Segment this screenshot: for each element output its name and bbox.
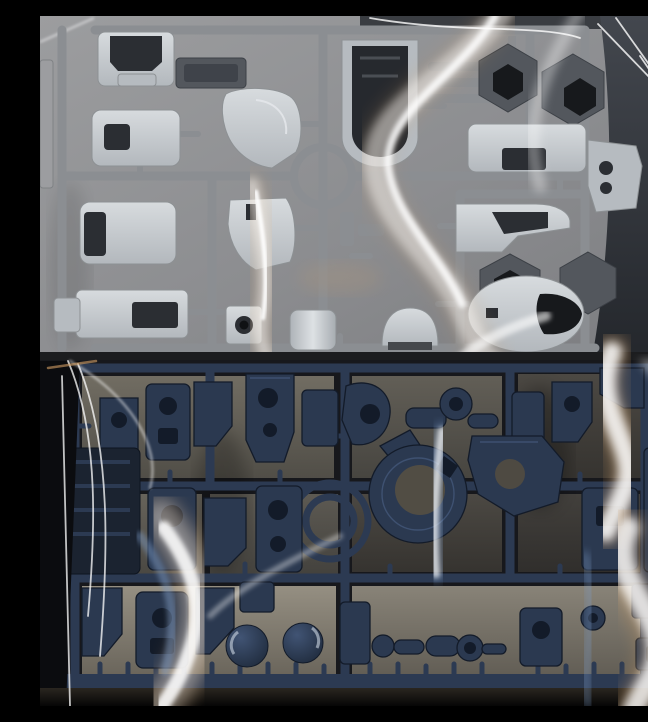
frame-part: [246, 374, 294, 462]
bracket-hole-2: [600, 182, 612, 194]
egg-body-slot: [486, 308, 498, 318]
photo-divider: [40, 352, 648, 360]
warm-glow: [298, 262, 382, 294]
vent-plate-recess: [184, 64, 238, 82]
frame-part: [146, 384, 190, 460]
chest-armor-lip: [118, 74, 156, 86]
table-bottom-strip: [40, 688, 648, 706]
bottom-photo-dark-runner: [40, 352, 648, 706]
small-runner-bit: [340, 212, 354, 246]
part-thruster-cylinder: [290, 310, 336, 350]
shoulder-dome-2: [283, 623, 323, 663]
right-flame-blue: [585, 556, 591, 704]
camera-lens: [240, 321, 249, 330]
part-small-bracket: [588, 140, 642, 212]
frame-part: [302, 390, 338, 446]
photo-model-kit-runners: [40, 16, 648, 706]
head-dome-shadow: [388, 342, 432, 350]
leg-armor-opening: [104, 124, 130, 150]
top-photo-light-runner: [40, 16, 648, 364]
waist-box-slot: [132, 302, 178, 328]
photo-canvas: [40, 16, 648, 706]
runner-side-tab: [40, 60, 53, 188]
skirt-armor-opening: [84, 212, 106, 256]
bracket-hole: [599, 161, 613, 175]
small-bracket: [340, 602, 370, 664]
chest-armor-opening: [110, 36, 162, 71]
part-side-tab-small: [54, 298, 80, 332]
gear-plate-hole: [495, 459, 525, 489]
